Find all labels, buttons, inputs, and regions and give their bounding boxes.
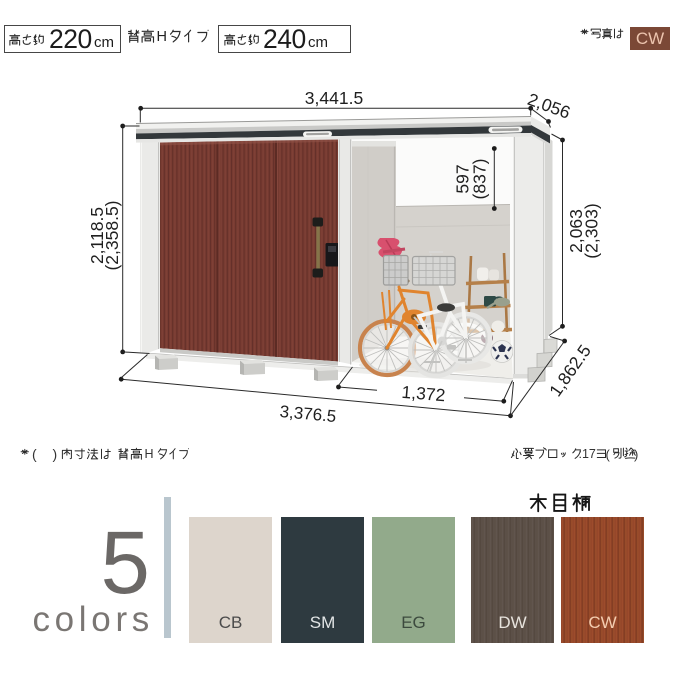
svg-text:3,376.5: 3,376.5 — [279, 402, 337, 426]
svg-text:(837): (837) — [470, 159, 490, 200]
svg-text:(2,303): (2,303) — [582, 203, 602, 258]
svg-text:3,441.5: 3,441.5 — [305, 88, 363, 108]
svg-text:1,372: 1,372 — [401, 382, 446, 406]
svg-text:(2,358.5): (2,358.5) — [102, 200, 122, 270]
